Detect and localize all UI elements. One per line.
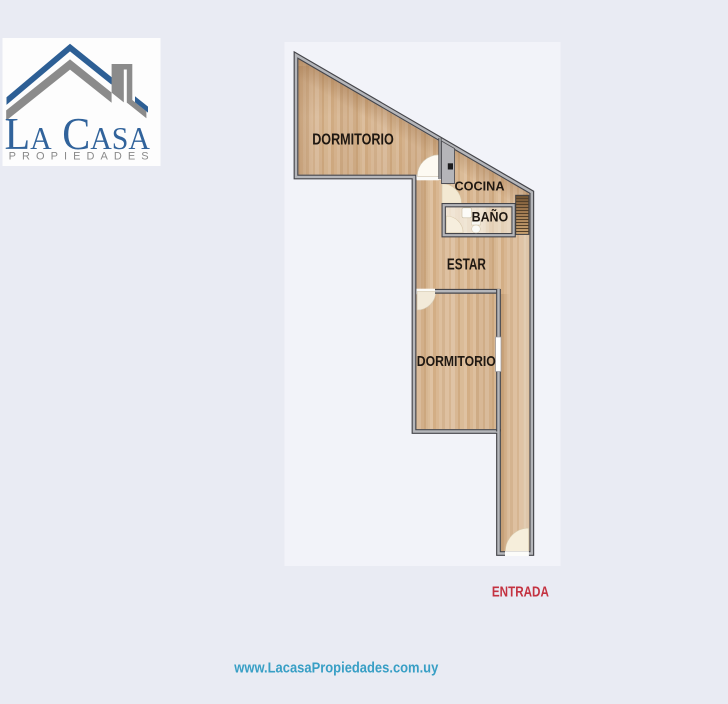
svg-text:ENTRADA: ENTRADA (492, 585, 549, 601)
svg-text:DORMITORIO: DORMITORIO (417, 353, 496, 370)
svg-text:ESTAR: ESTAR (447, 256, 486, 273)
svg-text:COCINA: COCINA (455, 179, 505, 193)
svg-text:www.LacasaPropiedades.com.uy: www.LacasaPropiedades.com.uy (233, 660, 438, 677)
svg-text:BAÑO: BAÑO (472, 208, 509, 226)
svg-text:PROPIEDADES: PROPIEDADES (9, 151, 149, 163)
svg-text:DORMITORIO: DORMITORIO (312, 131, 394, 148)
